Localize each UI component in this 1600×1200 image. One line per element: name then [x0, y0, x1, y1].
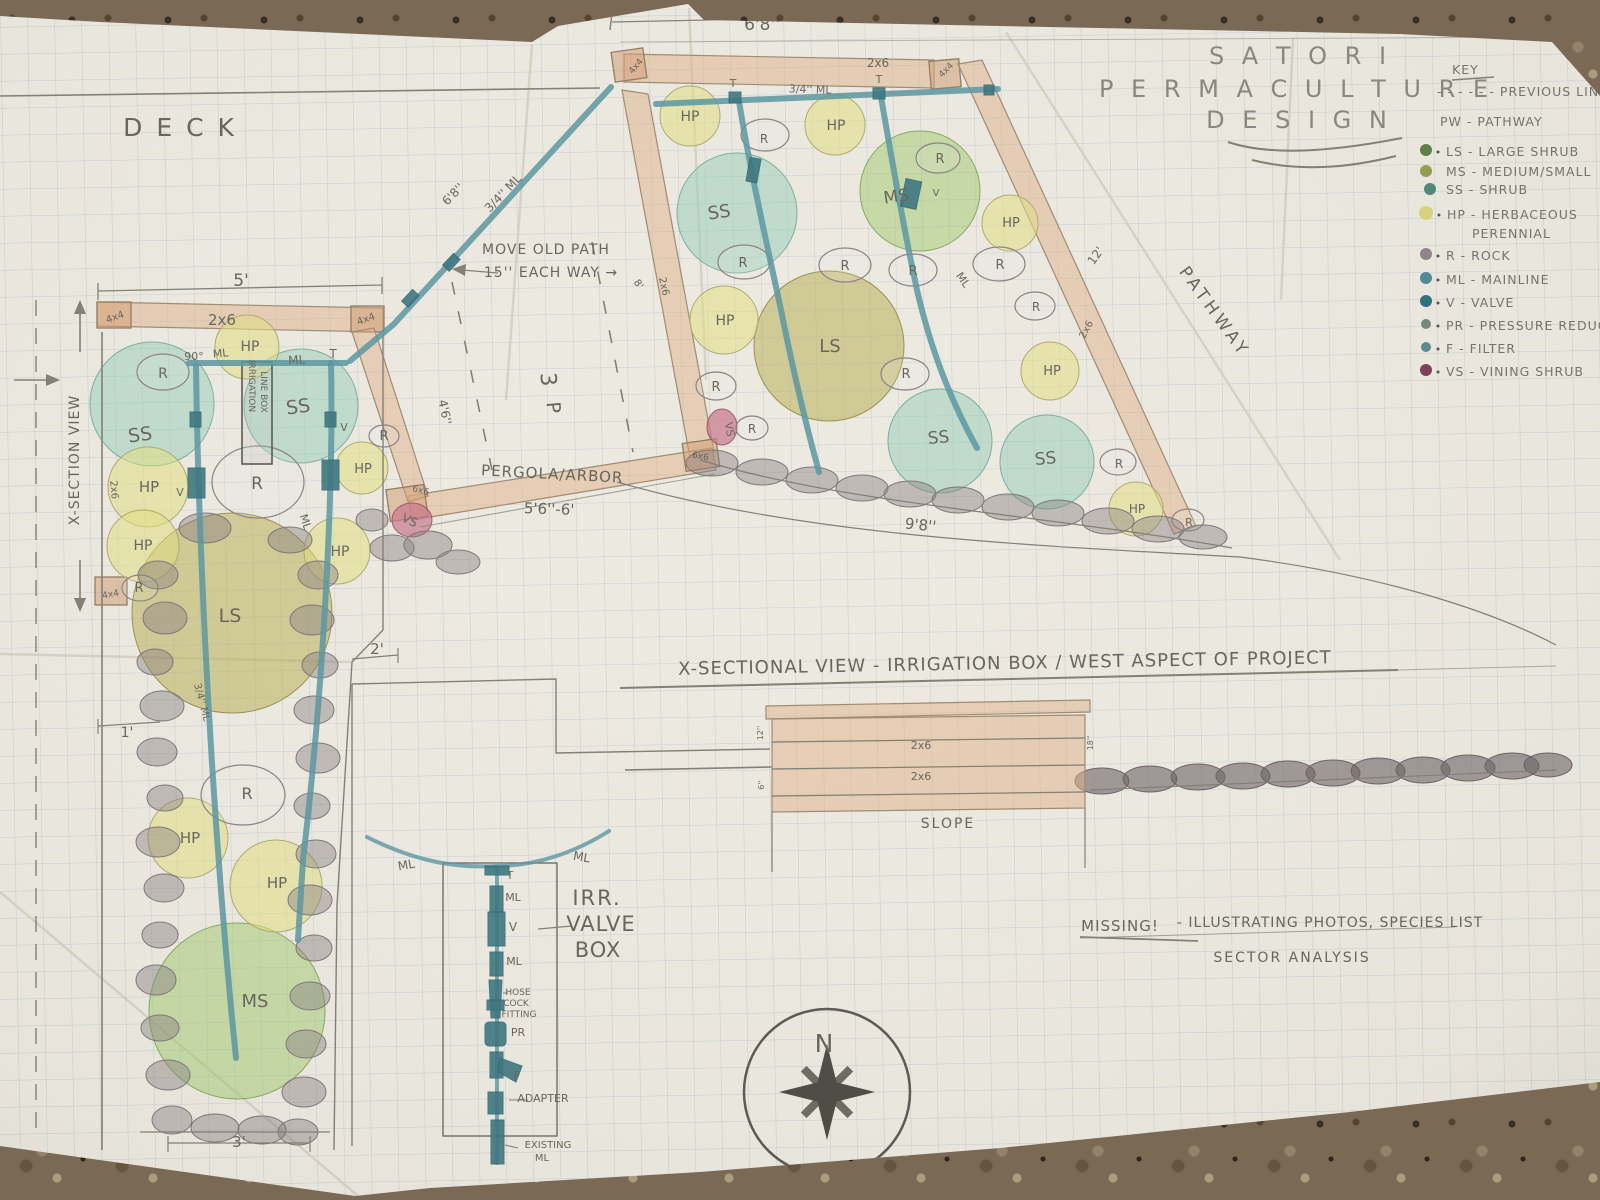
plan-label: HP	[1129, 502, 1145, 516]
plan-label: R	[901, 367, 910, 382]
key-item: R - ROCK	[1446, 248, 1511, 263]
plan-label: R	[1032, 300, 1040, 314]
plan-label: D E C K	[123, 113, 237, 142]
plan-label: ML	[397, 857, 417, 874]
plan-label: IRRIGATION	[246, 360, 256, 412]
valve-fitting	[188, 468, 205, 498]
plan-label: 2x6	[208, 311, 236, 329]
plan-label: R	[908, 264, 917, 279]
plan-label: ML	[288, 352, 306, 367]
key-dot	[1421, 342, 1431, 352]
plan-label: ML	[572, 849, 592, 866]
plan-label: HP	[827, 118, 846, 134]
key-dot	[1420, 272, 1432, 284]
plan-label: LINE BOX	[258, 371, 268, 413]
plan-label: HP	[716, 313, 735, 329]
plan-label: PR	[511, 1026, 526, 1039]
plan-label: ML	[535, 1153, 550, 1164]
key-item: MS - MEDIUM/SMALL	[1446, 164, 1592, 179]
page-title-line2: P E R M A C U L T U R E	[1099, 75, 1493, 103]
plan-label: HP	[267, 874, 287, 892]
key-item: PW - PATHWAY	[1440, 114, 1543, 129]
key-dot	[1421, 319, 1431, 329]
plan-label: R	[379, 429, 388, 444]
plan-label: HP	[681, 109, 700, 125]
plan-label: HP	[180, 829, 200, 847]
plan-label: R	[935, 152, 944, 167]
plan-label: MS	[882, 185, 910, 208]
plan-label: HP	[139, 478, 159, 496]
plan-label: ML	[212, 346, 230, 361]
plan-label: 2'	[370, 640, 384, 658]
plan-label: SS	[127, 422, 154, 447]
page-title-line3: D E S I G N	[1206, 106, 1392, 134]
plan-label: - ILLUSTRATING PHOTOS, SPECIES LIST	[1177, 915, 1483, 931]
adapter-component	[488, 1092, 503, 1114]
plan-label: SS	[927, 427, 950, 449]
plan-label: R	[738, 256, 747, 271]
key-dot	[1420, 165, 1432, 177]
plan-label: 6'8''	[744, 15, 780, 35]
key-item: V - VALVE	[1446, 295, 1514, 310]
plan-label: P	[542, 401, 565, 414]
plan-label: HP	[1043, 364, 1061, 379]
plan-label: SS	[706, 201, 732, 225]
key-item: ML - MAINLINE	[1446, 272, 1549, 287]
plan-label: HOSE	[505, 988, 531, 998]
plan-label: ADAPTER	[517, 1092, 569, 1105]
plan-label: FITTING	[501, 1010, 536, 1020]
plan-label: V	[176, 486, 184, 499]
plan-label: MOVE OLD PATH	[482, 242, 610, 258]
plan-label: 20' TOTAL RUN	[313, 0, 482, 18]
key-item: HP - HERBACEOUS	[1447, 207, 1578, 222]
granite-countertop: KEY - - - - - - PREVIOUS LINE PW - PATHW…	[0, 0, 1600, 1200]
plan-label: HP	[354, 462, 372, 477]
plan-label: 9'8''	[904, 514, 937, 535]
plan-label: N	[815, 1029, 834, 1058]
key-dot	[1424, 183, 1436, 195]
plan-label: HP	[241, 339, 260, 355]
plan-label: MISSING!	[1081, 917, 1159, 935]
plan-label: 90°	[184, 350, 204, 363]
key-item: PERENNIAL	[1472, 226, 1551, 241]
plan-label: 5'	[233, 271, 249, 291]
plan-label: R	[158, 366, 168, 382]
plan-label: R	[1185, 516, 1193, 529]
permaculture-plan-drawing: KEY - - - - - - PREVIOUS LINE PW - PATHW…	[0, 0, 1600, 1200]
plan-label: R	[1115, 457, 1123, 471]
plan-label: 6''	[757, 780, 766, 790]
plan-label: 2x6	[867, 56, 889, 70]
plan-label: SS	[1034, 448, 1057, 470]
irrigation-box-body	[772, 715, 1085, 812]
plan-label: MS	[242, 991, 269, 1012]
plan-label: ML	[506, 955, 522, 968]
plan-label: IRR.	[572, 886, 621, 910]
key-dot	[1420, 295, 1432, 307]
valve-component	[488, 912, 505, 946]
plan-label: COCK	[503, 999, 530, 1009]
key-dot	[1420, 364, 1432, 376]
hose-cock-fitting	[489, 980, 502, 1018]
plan-label: VALVE	[566, 912, 635, 936]
plan-label: V	[933, 188, 940, 199]
plan-label: 3/4'' ML	[788, 82, 832, 97]
plan-label: X-SECTION VIEW	[67, 395, 83, 525]
plan-label: R	[760, 132, 768, 146]
plan-label: R	[241, 784, 252, 803]
plan-label: EXISTING	[525, 1140, 572, 1151]
key-item: LS - LARGE SHRUB	[1446, 144, 1579, 159]
key-dot	[1420, 144, 1432, 156]
plan-label: V	[340, 421, 348, 434]
plan-label: 2x6	[911, 770, 932, 783]
valve-fitting	[322, 460, 339, 490]
tee-fitting	[485, 866, 509, 875]
plan-label: 2x6	[911, 739, 932, 752]
plan-label: R	[251, 474, 263, 494]
plan-label: HP	[1002, 216, 1020, 231]
plan-label: HP	[331, 544, 350, 560]
plan-label: 3'	[232, 1133, 246, 1151]
plan-label: T	[506, 869, 514, 882]
plan-label: R	[711, 380, 720, 395]
plan-label: R	[748, 422, 756, 436]
plan-label: 1'	[121, 725, 134, 741]
plan-label: SS	[285, 394, 312, 419]
key-item: PR - PRESSURE REDUCER	[1446, 318, 1600, 333]
plan-label: 18''	[1086, 736, 1095, 751]
plan-label: V	[509, 920, 518, 934]
plan-label: SLOPE	[921, 816, 976, 832]
plan-label: F	[514, 1069, 521, 1083]
plan-label: LS	[219, 605, 242, 627]
key-item: VS - VINING SHRUB	[1446, 364, 1584, 379]
plan-label: VS	[722, 421, 737, 438]
plan-label: SECTOR ANALYSIS	[1213, 950, 1370, 966]
plan-label: R	[840, 259, 849, 274]
key-dot	[1419, 206, 1433, 220]
plan-label: T	[729, 77, 737, 90]
pressure-reducer	[485, 1022, 506, 1046]
plan-label: 5'6''-6'	[524, 499, 575, 519]
plan-label: 3	[534, 371, 560, 387]
plan-label: 2x6	[107, 480, 120, 500]
plan-label: LS	[819, 336, 840, 357]
plan-label: R	[995, 258, 1004, 273]
plan-label: T	[875, 73, 883, 86]
plan-label: T	[328, 347, 337, 361]
plan-label: HP	[134, 538, 153, 554]
existing-mainline	[491, 1120, 504, 1164]
key-item: F - FILTER	[1446, 341, 1516, 356]
key-item: SS - SHRUB	[1446, 182, 1528, 197]
page-title-line1: S A T O R I	[1209, 42, 1391, 70]
plan-label: 12''	[756, 726, 765, 741]
key-dot	[1420, 248, 1432, 260]
plan-label: 15'' EACH WAY →	[484, 265, 618, 281]
plan-label: ML	[505, 891, 521, 904]
plan-label: BOX	[575, 938, 622, 962]
plan-label: R	[134, 581, 143, 596]
